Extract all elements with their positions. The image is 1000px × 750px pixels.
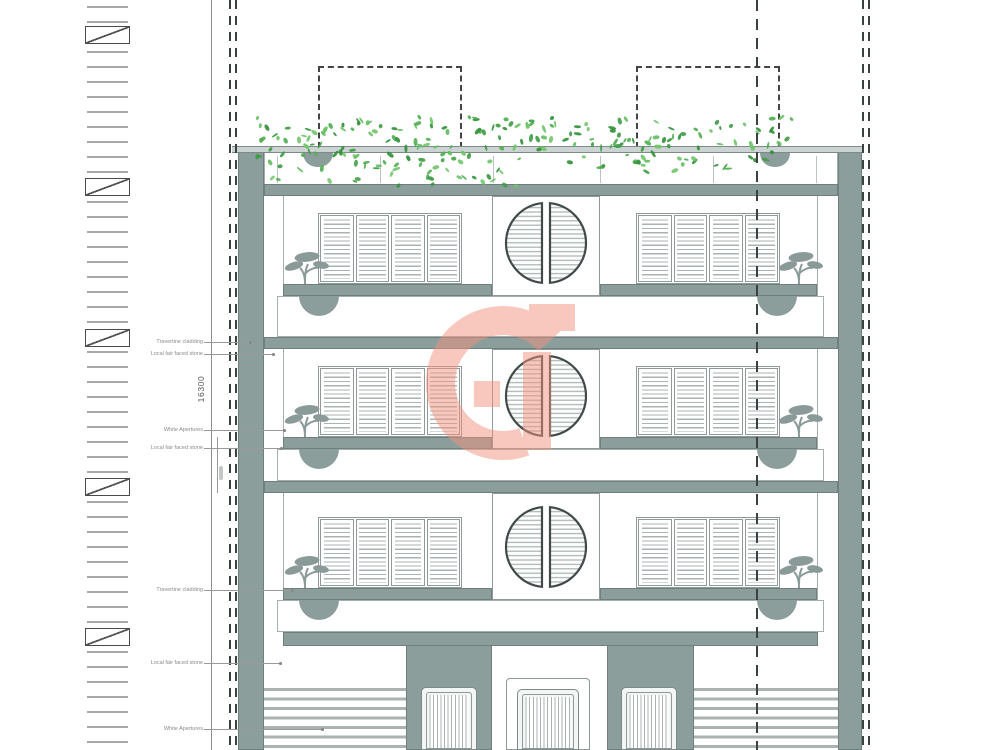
shutter-panel [427, 519, 461, 586]
stair-rung [87, 576, 128, 578]
parapet-joint-line [713, 156, 714, 183]
leaf [550, 116, 554, 121]
porthole-window [504, 505, 588, 589]
leader-end-dot [249, 341, 252, 344]
door-leaf [522, 694, 574, 749]
stair-rung [87, 651, 128, 653]
leaf [445, 129, 450, 136]
material-label: Local fair faced stone [141, 445, 203, 452]
door-leaf [626, 692, 672, 749]
fascia-band [277, 449, 824, 481]
section-marker-box [85, 478, 130, 496]
balcony-slab [600, 437, 817, 449]
stair-rung [87, 381, 128, 383]
leader-end-dot [279, 662, 282, 665]
shutter-window [318, 213, 462, 284]
parapet-joint-line [600, 156, 601, 183]
stair-rung [87, 666, 128, 668]
shutter-panel [709, 368, 743, 435]
leaf [259, 123, 262, 128]
dimension-label: 16300 [196, 359, 208, 419]
leader-end-dot [280, 447, 283, 450]
section-marker-box [85, 628, 130, 646]
shutter-panel [391, 519, 425, 586]
leaf [574, 125, 581, 128]
stair-rung [87, 21, 128, 23]
shutter-panel [745, 215, 779, 282]
leader-line [204, 590, 292, 591]
leaf [404, 145, 408, 153]
leaf [306, 135, 311, 143]
shutter-window [318, 366, 462, 437]
tree-icon [777, 393, 825, 437]
stair-rung [87, 321, 128, 323]
leaf [263, 124, 270, 132]
entrance-door [421, 687, 477, 750]
shutter-panel [674, 368, 708, 435]
leader-end-dot [291, 589, 294, 592]
leaf [574, 132, 582, 136]
leaf [481, 129, 487, 136]
balcony-slab [283, 284, 492, 296]
roof-dashed-outline-left [318, 66, 462, 148]
shutter-window [636, 213, 780, 284]
canopy-band [283, 632, 818, 646]
stair-rung [87, 246, 128, 248]
parapet-joint-line [380, 156, 381, 183]
shutter-panel [391, 368, 425, 435]
leaf [631, 138, 635, 144]
fascia-band [277, 296, 824, 337]
shutter-window [636, 366, 780, 437]
leaf [583, 121, 588, 127]
leaf [568, 131, 572, 137]
leaf [567, 160, 573, 164]
leaf [589, 138, 594, 141]
leaf [301, 134, 307, 137]
shutter-panel [391, 215, 425, 282]
porthole-window [504, 354, 588, 438]
leaf [617, 117, 623, 125]
leader-line [204, 663, 280, 664]
leaf [627, 138, 631, 142]
stair-rung [87, 261, 128, 263]
stair-rung [87, 366, 128, 368]
stair-rung [87, 546, 128, 548]
leaf [502, 127, 508, 131]
elevation-drawing-canvas: 16300 Travertine claddingLocal fair face… [0, 0, 1000, 750]
stair-rung [87, 591, 128, 593]
stair-rung [87, 201, 128, 203]
stair-rung [87, 141, 128, 143]
stair-rung [87, 396, 128, 398]
stair-rung [87, 351, 128, 353]
boundary-dashed-line [235, 0, 237, 750]
stair-rung [87, 171, 128, 173]
leaf [296, 137, 302, 144]
boundary-dashed-line [862, 0, 864, 750]
door-leaf [426, 692, 472, 749]
shutter-panel [427, 215, 461, 282]
stair-rung [87, 456, 128, 458]
leaf [513, 123, 520, 129]
stair-rung [87, 741, 128, 743]
stair-rung [87, 231, 128, 233]
stair-rung [87, 681, 128, 683]
stair-rung [87, 471, 128, 473]
stone-course-wall [264, 688, 406, 750]
stair-rung [87, 306, 128, 308]
stair-rung [87, 156, 128, 158]
leaf [467, 153, 471, 159]
shutter-panel [638, 215, 672, 282]
stair-rung [87, 411, 128, 413]
leaf [397, 128, 403, 130]
leaf [587, 126, 590, 130]
leader-end-dot [283, 429, 286, 432]
leader-line [204, 342, 250, 343]
leader-end-dot [272, 353, 275, 356]
shutter-panel [356, 215, 390, 282]
section-marker-box [85, 26, 130, 44]
stair-rung [87, 126, 128, 128]
boundary-dashed-line [868, 0, 870, 750]
tree-icon [777, 240, 825, 284]
leaf [495, 124, 501, 129]
material-label: Travertine cladding [141, 339, 203, 346]
stair-rung [87, 696, 128, 698]
tree-icon [283, 240, 331, 284]
porthole-window [504, 201, 588, 285]
tree-icon [283, 544, 331, 588]
floor-slab-band [264, 337, 838, 349]
leaf [282, 137, 288, 144]
grid-dashed-line [756, 0, 758, 750]
tree-icon [283, 393, 331, 437]
leader-end-dot [321, 728, 324, 731]
leaf [466, 114, 471, 119]
leaf [540, 135, 547, 139]
entrance-door [517, 689, 579, 750]
stair-rung [87, 711, 128, 713]
shutter-panel [356, 519, 390, 586]
stair-rung [87, 606, 128, 608]
stair-rung [87, 66, 128, 68]
left-pilaster [238, 150, 264, 750]
stair-rung [87, 96, 128, 98]
leaf [617, 133, 621, 138]
stair-rung [87, 6, 128, 8]
leader-line [204, 448, 281, 449]
stair-rung [87, 276, 128, 278]
leaf [426, 138, 431, 141]
leaf [654, 144, 662, 149]
material-label: Local fair faced stone [141, 660, 203, 667]
dimension-line [211, 0, 212, 750]
shutter-window [636, 517, 780, 588]
stair-rung [87, 216, 128, 218]
shutter-window [318, 517, 462, 588]
stone-course-wall [694, 688, 838, 750]
entrance-door [621, 687, 677, 750]
shutter-panel [745, 519, 779, 586]
stair-rung [87, 81, 128, 83]
balcony-slab [283, 437, 492, 449]
leaf [508, 121, 514, 128]
right-pilaster [838, 150, 862, 750]
leaf [372, 129, 379, 133]
balcony-slab [600, 284, 817, 296]
stair-rung [87, 561, 128, 563]
shutter-panel [709, 519, 743, 586]
leaf [542, 125, 548, 133]
leaf [548, 136, 553, 143]
shutter-panel [427, 368, 461, 435]
material-label: White Apertures [141, 726, 203, 733]
leaf [519, 139, 524, 146]
stair-rung [87, 111, 128, 113]
leader-line [204, 430, 284, 431]
stair-rung [87, 501, 128, 503]
shutter-panel [745, 368, 779, 435]
stair-rung [87, 531, 128, 533]
section-marker-box [85, 329, 130, 347]
stair-rung [87, 426, 128, 428]
sub-dimension-line [217, 437, 218, 493]
leaf [491, 124, 495, 131]
parapet-joint-line [816, 156, 817, 183]
leaf [418, 158, 425, 162]
shutter-panel [709, 215, 743, 282]
leaf [275, 135, 281, 141]
stair-rung [87, 441, 128, 443]
leaf [528, 134, 532, 142]
material-label: Local fair faced stone [141, 351, 203, 358]
floor-slab-band [264, 184, 838, 196]
leaf [256, 116, 260, 121]
fascia-band [277, 600, 824, 632]
leaf [284, 126, 291, 131]
tree-icon [777, 544, 825, 588]
balcony-slab [283, 588, 492, 600]
micro-annotation-mark [219, 466, 223, 480]
leaf [623, 116, 630, 123]
leaf [610, 129, 616, 134]
stair-rung [87, 516, 128, 518]
leaf [355, 177, 361, 181]
leaf [783, 135, 790, 142]
shutter-panel [674, 519, 708, 586]
leaf [528, 119, 534, 123]
shutter-panel [356, 368, 390, 435]
leader-line [204, 354, 273, 355]
shutter-panel [674, 215, 708, 282]
balcony-slab [600, 588, 817, 600]
stair-rung [87, 621, 128, 623]
leaf [497, 135, 502, 141]
stair-rung [87, 51, 128, 53]
stair-rung [87, 726, 128, 728]
shutter-panel [638, 368, 672, 435]
stair-rung [87, 291, 128, 293]
leaf [561, 137, 569, 143]
boundary-dashed-line [229, 0, 231, 750]
floor-slab-band [264, 481, 838, 493]
shutter-panel [638, 519, 672, 586]
material-label: Travertine cladding [141, 587, 203, 594]
section-marker-box [85, 178, 130, 196]
leaf [789, 117, 794, 122]
material-label: White Apertures [141, 427, 203, 434]
leader-line [204, 729, 322, 730]
